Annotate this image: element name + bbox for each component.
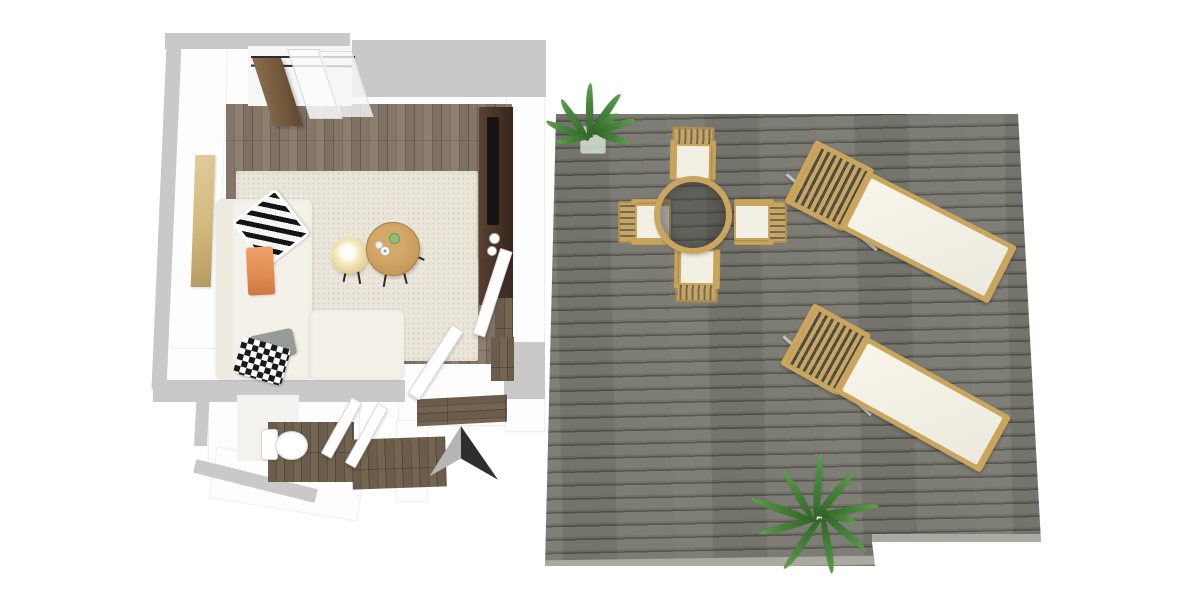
outdoor-chair-north <box>670 127 717 184</box>
decor-vase <box>489 233 500 244</box>
entry-threshold-wood <box>417 395 507 427</box>
floorplan-scene <box>0 0 1200 600</box>
entry-floor-wood <box>491 337 514 381</box>
chair-cushion <box>679 249 716 286</box>
chair-cushion <box>734 204 770 240</box>
orange-throw-blanket <box>246 246 275 295</box>
hallway-wall-right <box>505 396 545 432</box>
decor-vase <box>487 246 497 256</box>
chair-cushion <box>675 144 712 181</box>
outdoor-chair-east <box>731 199 787 245</box>
north-arrow-right-wing <box>428 426 498 482</box>
wall-cap-top-right <box>352 40 546 97</box>
cream-round-side-table <box>331 237 368 274</box>
sectional-sofa-chaise-section <box>310 310 404 379</box>
green-cup <box>389 233 400 244</box>
wood-round-coffee-table <box>366 222 420 276</box>
potted-plant-top <box>552 84 636 170</box>
small-dish <box>375 241 383 249</box>
outdoor-dining-table <box>654 176 732 254</box>
tv <box>487 117 499 225</box>
chair-slat-back <box>676 283 718 303</box>
sofa-backrest <box>216 199 233 379</box>
outdoor-chair-south <box>674 246 721 303</box>
north-arrow-icon <box>428 426 498 482</box>
potted-plant-bottom <box>740 460 900 578</box>
chair-slat-back <box>768 201 787 243</box>
toilet-bowl <box>275 431 308 460</box>
